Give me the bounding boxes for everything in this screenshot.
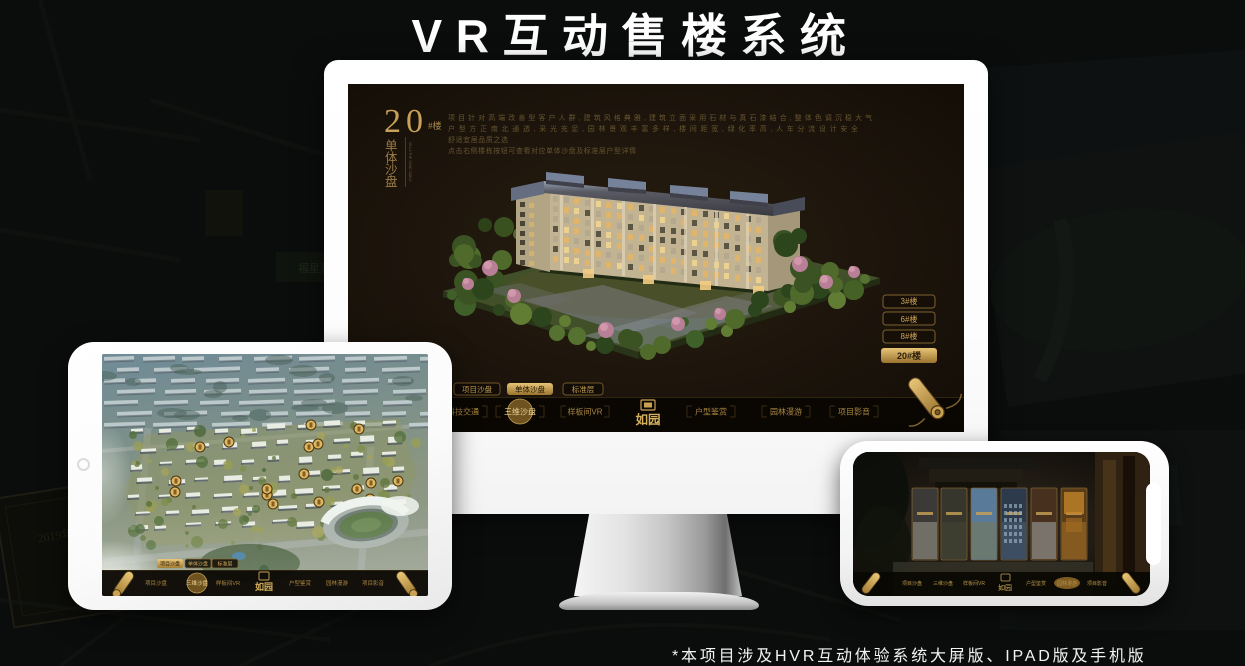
svg-text:舒适宜居品质之选: 舒适宜居品质之选 xyxy=(448,135,508,144)
svg-text:样板间VR: 样板间VR xyxy=(216,579,240,587)
svg-text:项目影音: 项目影音 xyxy=(1087,580,1107,587)
svg-text:三维沙盘: 三维沙盘 xyxy=(504,407,536,417)
svg-text:三维沙盘: 三维沙盘 xyxy=(933,580,953,587)
svg-text:如园: 如园 xyxy=(635,412,660,427)
svg-text:20#楼: 20#楼 xyxy=(897,350,921,361)
svg-text:点击右侧楼栋按钮可查看对应单体沙盘及标准层户型详情: 点击右侧楼栋按钮可查看对应单体沙盘及标准层户型详情 xyxy=(448,146,636,155)
svg-text:项目沙盘: 项目沙盘 xyxy=(145,579,168,587)
svg-text:项目沙盘: 项目沙盘 xyxy=(462,384,492,394)
svg-text:项目沙盘: 项目沙盘 xyxy=(902,580,922,587)
svg-text:单体沙盘: 单体沙盘 xyxy=(188,561,208,568)
svg-text:项目针对高端改善型客户人群,建筑风格典雅,建筑立面采用石材与: 项目针对高端改善型客户人群,建筑风格典雅,建筑立面采用石材与真石漆结合,整体色调… xyxy=(448,113,872,122)
svg-text:VILLA THE SAND TABLE: VILLA THE SAND TABLE xyxy=(408,142,412,182)
svg-text:户型鉴赏: 户型鉴赏 xyxy=(695,407,727,417)
svg-text:如园: 如园 xyxy=(255,581,273,592)
svg-text:三维沙盘: 三维沙盘 xyxy=(186,579,209,587)
svg-text:户型鉴赏: 户型鉴赏 xyxy=(289,579,312,587)
svg-text:样板间VR: 样板间VR xyxy=(963,580,985,587)
svg-text:园林漫游: 园林漫游 xyxy=(770,407,802,417)
svg-text:园林漫游: 园林漫游 xyxy=(326,579,349,587)
svg-text:如园: 如园 xyxy=(998,583,1012,592)
svg-text:20: 20 xyxy=(384,103,428,140)
svg-text:8#楼: 8#楼 xyxy=(901,331,918,341)
svg-text:标准层: 标准层 xyxy=(217,561,232,568)
svg-text:户型鉴赏: 户型鉴赏 xyxy=(1026,580,1046,587)
svg-text:园林漫游: 园林漫游 xyxy=(1057,580,1077,587)
svg-text:标准层: 标准层 xyxy=(572,384,595,394)
svg-text:项目沙盘: 项目沙盘 xyxy=(160,561,180,568)
svg-text:单体沙盘: 单体沙盘 xyxy=(515,384,545,394)
svg-text:样板间VR: 样板间VR xyxy=(567,407,602,417)
svg-text:6#楼: 6#楼 xyxy=(901,314,918,324)
svg-text:盘: 盘 xyxy=(385,174,398,189)
svg-text:项目影音: 项目影音 xyxy=(362,579,385,587)
svg-text:项目影音: 项目影音 xyxy=(838,407,870,417)
svg-text:#楼: #楼 xyxy=(428,120,442,131)
svg-text:3#楼: 3#楼 xyxy=(901,296,918,306)
